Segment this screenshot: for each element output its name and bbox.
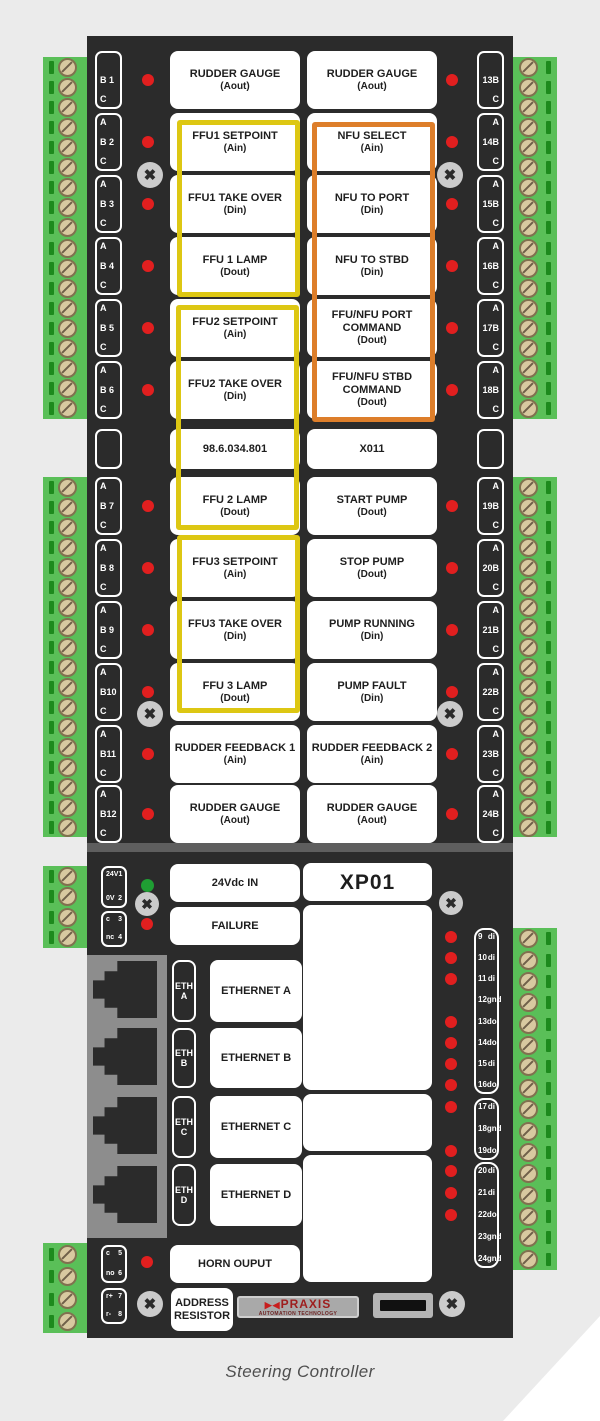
terminal-screw-icon bbox=[519, 218, 538, 237]
io-pin: 9di bbox=[478, 932, 495, 942]
label-title: FFU3 TAKE OVER bbox=[188, 618, 282, 631]
terminal-pin-label: 15B bbox=[482, 200, 499, 209]
status-led-red bbox=[142, 808, 154, 820]
label-sub: (Din) bbox=[224, 631, 247, 643]
terminal-pin-label: 18B bbox=[482, 386, 499, 395]
terminal-screw-icon bbox=[519, 718, 538, 737]
terminal-block-right: A14BC bbox=[477, 113, 504, 171]
ethernet-label: ETHERNET B bbox=[210, 1028, 302, 1088]
pin-name: c bbox=[106, 1250, 110, 1258]
strip-notch bbox=[49, 870, 54, 883]
strip-notch bbox=[49, 382, 54, 395]
terminal-screw-icon bbox=[58, 598, 77, 617]
strip-notch bbox=[546, 282, 551, 295]
strip-notch bbox=[546, 721, 551, 734]
pin-number: 13 bbox=[478, 1017, 487, 1027]
terminal-block-right: A21BC bbox=[477, 601, 504, 659]
terminal-pin-label: C bbox=[100, 343, 117, 352]
eth-tag-line: D bbox=[181, 1195, 188, 1205]
status-led-red bbox=[142, 384, 154, 396]
signal-label: RUDDER FEEDBACK 1(Ain) bbox=[170, 725, 300, 783]
label-sub: (Aout) bbox=[357, 815, 386, 827]
terminal-screw-icon bbox=[58, 798, 77, 817]
terminal-screw-icon bbox=[58, 78, 77, 97]
strip-notch bbox=[49, 621, 54, 634]
rj45-jack-icon bbox=[93, 1166, 157, 1223]
terminal-block-right: A22BC bbox=[477, 663, 504, 721]
terminal-screw-icon bbox=[58, 1267, 77, 1286]
io-pin-group: 9di10di11di12gnd13do14do15di16do bbox=[474, 928, 499, 1094]
terminal-screw-icon bbox=[58, 218, 77, 237]
terminal-pin-label: 23B bbox=[482, 750, 499, 759]
terminal-pin-row: r-8 bbox=[106, 1311, 122, 1319]
signal-label: 98.6.034.801 bbox=[170, 429, 300, 469]
pin-number: 17 bbox=[478, 1102, 487, 1112]
terminal-pin-label: A bbox=[482, 242, 499, 251]
terminal-pin-label: C bbox=[100, 583, 117, 592]
strip-notch bbox=[546, 402, 551, 415]
terminal-screw-icon bbox=[58, 98, 77, 117]
status-led-red bbox=[446, 808, 458, 820]
io-pin-group: 20di21di22do23gnd24gnd bbox=[474, 1162, 499, 1268]
terminal-screw-icon bbox=[519, 1207, 538, 1226]
strip-notch bbox=[546, 121, 551, 134]
signal-label: NFU TO PORT(Din) bbox=[307, 175, 437, 233]
io-pin: 18gnd bbox=[478, 1124, 495, 1134]
status-led-red bbox=[446, 322, 458, 334]
terminal-pin-label: B 9 bbox=[100, 626, 117, 635]
terminal-pin-label: A bbox=[100, 304, 117, 313]
strip-notch bbox=[49, 541, 54, 554]
terminal-pin-label: A bbox=[482, 790, 499, 799]
strip-notch bbox=[49, 761, 54, 774]
pin-number: 24 bbox=[478, 1254, 487, 1264]
signal-label: FFU/NFU STBD COMMAND(Dout) bbox=[307, 361, 437, 419]
terminal-block-right: A23BC bbox=[477, 725, 504, 783]
terminal-pin-row: nc4 bbox=[106, 934, 122, 942]
strip-notch bbox=[546, 1018, 551, 1031]
label-sub: (Dout) bbox=[220, 693, 249, 705]
strip-notch bbox=[546, 701, 551, 714]
status-led-red bbox=[142, 260, 154, 272]
strip-notch bbox=[49, 402, 54, 415]
label-title: FFU 3 LAMP bbox=[203, 680, 268, 693]
strip-notch bbox=[546, 1039, 551, 1052]
strip-notch bbox=[546, 1082, 551, 1095]
label-sub: (Ain) bbox=[224, 143, 247, 155]
label-title: RUDDER GAUGE bbox=[327, 802, 417, 815]
pin-name: r+ bbox=[106, 1293, 113, 1301]
terminal-pin-label: B 4 bbox=[100, 262, 117, 271]
terminal-block-right: A20BC bbox=[477, 539, 504, 597]
terminal-pin-label: A bbox=[100, 544, 117, 553]
label-title: RUDDER GAUGE bbox=[327, 68, 417, 81]
pin-type: di bbox=[488, 1059, 495, 1069]
strip-notch bbox=[546, 362, 551, 375]
terminal-screw-icon bbox=[58, 198, 77, 217]
terminal-screw-icon bbox=[519, 279, 538, 298]
label-title: 98.6.034.801 bbox=[203, 443, 267, 456]
strip-notch bbox=[546, 681, 551, 694]
terminal-screw-icon bbox=[58, 359, 77, 378]
strip-notch bbox=[49, 181, 54, 194]
terminal-screw-icon bbox=[519, 1036, 538, 1055]
power-led-green bbox=[141, 879, 154, 892]
eth-tag-line: ETH bbox=[175, 981, 193, 991]
module-id-label: XP01 bbox=[303, 863, 432, 901]
pin-type: di bbox=[488, 1166, 495, 1176]
terminal-block-left: B 1C bbox=[95, 51, 122, 109]
strip-notch bbox=[49, 931, 54, 944]
signal-label: RUDDER GAUGE(Aout) bbox=[307, 51, 437, 109]
strip-notch bbox=[49, 721, 54, 734]
status-led-red bbox=[445, 1058, 457, 1070]
label-title: FFU/NFU PORT COMMAND bbox=[311, 309, 433, 335]
pin-type: di bbox=[488, 932, 495, 942]
terminal-pin-label: B10 bbox=[100, 688, 117, 697]
strip-notch bbox=[49, 1315, 54, 1328]
io-pin: 20di bbox=[478, 1166, 495, 1176]
terminal-block-right: 13BC bbox=[477, 51, 504, 109]
strip-notch bbox=[49, 161, 54, 174]
pin-number: 14 bbox=[478, 1038, 487, 1048]
terminal-screw-icon bbox=[519, 498, 538, 517]
signal-label: FFU 3 LAMP(Dout) bbox=[170, 663, 300, 721]
pin-type: gnd bbox=[487, 995, 502, 1005]
pin-number: 7 bbox=[118, 1293, 122, 1301]
terminal-block-left: AB 5C bbox=[95, 299, 122, 357]
strip-notch bbox=[546, 1210, 551, 1223]
terminal-pin-label: C bbox=[482, 157, 499, 166]
label-title: RUDDER FEEDBACK 2 bbox=[312, 742, 432, 755]
ethernet-label: ETHERNET C bbox=[210, 1096, 302, 1158]
terminal-pin-row: no6 bbox=[106, 1270, 122, 1278]
io-pin: 21di bbox=[478, 1188, 495, 1198]
terminal-strip bbox=[43, 1243, 87, 1333]
pin-name: c bbox=[106, 916, 110, 924]
status-led-red bbox=[446, 748, 458, 760]
terminal-pin-label: C bbox=[100, 707, 117, 716]
signal-label: START PUMP(Dout) bbox=[307, 477, 437, 535]
label-sub: (Ain) bbox=[224, 329, 247, 341]
strip-notch bbox=[546, 322, 551, 335]
strip-notch bbox=[546, 1253, 551, 1266]
terminal-block-right: A15BC bbox=[477, 175, 504, 233]
strip-notch bbox=[546, 581, 551, 594]
terminal-screw-icon bbox=[58, 578, 77, 597]
terminal-pin-label: 13B bbox=[482, 76, 499, 85]
terminal-block-left: AB 8C bbox=[95, 539, 122, 597]
label-title: NFU SELECT bbox=[337, 130, 406, 143]
terminal-pin-label bbox=[482, 445, 499, 454]
terminal-screw-icon bbox=[519, 951, 538, 970]
terminal-screw-icon bbox=[58, 339, 77, 358]
power-terminal: 24V10V2 bbox=[101, 866, 127, 908]
terminal-strip bbox=[43, 477, 87, 837]
pin-number: 21 bbox=[478, 1188, 487, 1198]
terminal-block-left: AB 6C bbox=[95, 361, 122, 419]
strip-notch bbox=[49, 911, 54, 924]
status-led-red bbox=[446, 198, 458, 210]
terminal-pin-label: C bbox=[482, 583, 499, 592]
terminal-screw-icon bbox=[519, 1250, 538, 1269]
status-led-red bbox=[445, 931, 457, 943]
pin-number: 10 bbox=[478, 953, 487, 963]
status-led-red bbox=[142, 748, 154, 760]
status-led-red bbox=[445, 952, 457, 964]
signal-label: RUDDER GAUGE(Aout) bbox=[307, 785, 437, 843]
terminal-pin-label: B 3 bbox=[100, 200, 117, 209]
panel-divider bbox=[87, 843, 513, 852]
pin-number: 2 bbox=[118, 895, 122, 903]
controller-panel: 24V10V2c3nc424Vdc INFAILUREXP01ETHAETHER… bbox=[87, 852, 513, 1338]
label-title: ETHERNET B bbox=[221, 1052, 291, 1065]
eth-tag-line: ETH bbox=[175, 1185, 193, 1195]
terminal-screw-icon bbox=[519, 738, 538, 757]
pin-number: 22 bbox=[478, 1210, 487, 1220]
terminal-screw-icon bbox=[519, 1228, 538, 1247]
terminal-pin-label: B11 bbox=[100, 750, 117, 759]
screw-icon bbox=[437, 162, 463, 188]
terminal-pin-row: c3 bbox=[106, 916, 122, 924]
strip-notch bbox=[546, 1146, 551, 1159]
terminal-pin-label: 24B bbox=[482, 810, 499, 819]
pin-name: 0V bbox=[106, 895, 115, 903]
terminal-pin-label: C bbox=[100, 281, 117, 290]
terminal-pin-label: C bbox=[100, 219, 117, 228]
status-led-red bbox=[445, 1165, 457, 1177]
terminal-pin-label: C bbox=[482, 405, 499, 414]
signal-label: FFU1 TAKE OVER(Din) bbox=[170, 175, 300, 233]
terminal-screw-icon bbox=[519, 818, 538, 837]
io-pin: 24gnd bbox=[478, 1254, 495, 1264]
io-pin: 13do bbox=[478, 1017, 495, 1027]
terminal-screw-icon bbox=[519, 178, 538, 197]
io-pin: 11di bbox=[478, 974, 495, 984]
terminal-screw-icon bbox=[519, 138, 538, 157]
label-sub: (Din) bbox=[361, 267, 384, 279]
terminal-screw-icon bbox=[519, 1122, 538, 1141]
terminal-block-right: A24BC bbox=[477, 785, 504, 843]
pin-number: 15 bbox=[478, 1059, 487, 1069]
signal-label: FFU3 TAKE OVER(Din) bbox=[170, 601, 300, 659]
pin-number: 1 bbox=[118, 871, 122, 879]
strip-notch bbox=[546, 262, 551, 275]
pin-number: 12 bbox=[478, 995, 487, 1005]
pin-number: 23 bbox=[478, 1232, 487, 1242]
terminal-pin-label: C bbox=[100, 829, 117, 838]
terminal-pin-row: 0V2 bbox=[106, 895, 122, 903]
strip-notch bbox=[49, 661, 54, 674]
strip-notch bbox=[49, 681, 54, 694]
strip-notch bbox=[546, 1231, 551, 1244]
terminal-strip bbox=[43, 57, 87, 419]
terminal-screw-icon bbox=[519, 118, 538, 137]
terminal-screw-icon bbox=[58, 538, 77, 557]
terminal-screw-icon bbox=[519, 158, 538, 177]
signal-label: FFU2 TAKE OVER(Din) bbox=[170, 361, 300, 419]
strip-notch bbox=[49, 282, 54, 295]
status-led-red bbox=[445, 1187, 457, 1199]
terminal-pin-label: A bbox=[482, 544, 499, 553]
terminal-block-left: AB 3C bbox=[95, 175, 122, 233]
strip-notch bbox=[546, 221, 551, 234]
strip-notch bbox=[49, 342, 54, 355]
pin-type: gnd bbox=[487, 1254, 502, 1264]
connector-slot bbox=[373, 1293, 433, 1318]
ethernet-label: ETHERNET D bbox=[210, 1164, 302, 1226]
pin-type: do bbox=[487, 1210, 497, 1220]
signal-label: FFU1 SETPOINT(Ain) bbox=[170, 113, 300, 171]
eth-port-tag: ETHD bbox=[172, 1164, 196, 1226]
terminal-screw-icon bbox=[519, 1100, 538, 1119]
pin-number: 11 bbox=[478, 974, 486, 984]
label-sub: (Aout) bbox=[220, 81, 249, 93]
io-pin: 17di bbox=[478, 1102, 495, 1112]
strip-notch bbox=[546, 561, 551, 574]
pin-type: di bbox=[488, 974, 495, 984]
pin-name: r- bbox=[106, 1311, 111, 1319]
pin-type: do bbox=[487, 1080, 497, 1090]
strip-notch bbox=[49, 890, 54, 903]
strip-notch bbox=[546, 781, 551, 794]
terminal-pin-label: 19B bbox=[482, 502, 499, 511]
strip-notch bbox=[49, 821, 54, 834]
terminal-pin-label: B12 bbox=[100, 810, 117, 819]
strip-notch bbox=[49, 501, 54, 514]
strip-notch bbox=[49, 521, 54, 534]
strip-notch bbox=[49, 141, 54, 154]
label-sub: (Ain) bbox=[224, 569, 247, 581]
terminal-screw-icon bbox=[519, 558, 538, 577]
strip-notch bbox=[546, 761, 551, 774]
screw-icon bbox=[439, 891, 463, 915]
label-title: HORN OUPUT bbox=[198, 1258, 272, 1271]
pin-number: 8 bbox=[118, 1311, 122, 1319]
terminal-pin-label: A bbox=[100, 730, 117, 739]
status-led-red bbox=[446, 500, 458, 512]
terminal-screw-icon bbox=[58, 908, 77, 927]
signal-label: FFU2 SETPOINT(Ain) bbox=[170, 299, 300, 357]
terminal-pin-label: C bbox=[482, 707, 499, 716]
label-title: 24Vdc IN bbox=[212, 877, 258, 890]
terminal-pin-label: B 5 bbox=[100, 324, 117, 333]
label-sub: (Din) bbox=[224, 391, 247, 403]
terminal-pin-label: C bbox=[482, 281, 499, 290]
terminal-pin-label: C bbox=[100, 95, 117, 104]
resistor-terminal: r+7r-8 bbox=[101, 1288, 127, 1324]
strip-notch bbox=[546, 521, 551, 534]
pin-name: nc bbox=[106, 934, 114, 942]
status-led-red bbox=[142, 624, 154, 636]
pin-type: gnd bbox=[487, 1124, 502, 1134]
blank-module-box bbox=[303, 905, 432, 1090]
terminal-pin-label: A bbox=[100, 242, 117, 251]
strip-notch bbox=[546, 1060, 551, 1073]
strip-notch bbox=[49, 801, 54, 814]
label-title: FFU2 TAKE OVER bbox=[188, 378, 282, 391]
strip-notch bbox=[49, 701, 54, 714]
failure-led-red bbox=[141, 918, 153, 930]
terminal-pin-label: 16B bbox=[482, 262, 499, 271]
terminal-screw-icon bbox=[58, 138, 77, 157]
terminal-screw-icon bbox=[58, 399, 77, 418]
status-led-red bbox=[446, 384, 458, 396]
label-sub: (Dout) bbox=[357, 569, 386, 581]
terminal-pin-label: B 2 bbox=[100, 138, 117, 147]
strip-notch bbox=[546, 601, 551, 614]
terminal-pin-label: B 8 bbox=[100, 564, 117, 573]
terminal-screw-icon bbox=[58, 778, 77, 797]
terminal-screw-icon bbox=[58, 1245, 77, 1264]
status-led-red bbox=[142, 322, 154, 334]
power-input-label: 24Vdc IN bbox=[170, 864, 300, 902]
terminal-screw-icon bbox=[58, 518, 77, 537]
label-title: ADDRESS bbox=[175, 1297, 229, 1310]
strip-notch bbox=[49, 561, 54, 574]
strip-notch bbox=[546, 641, 551, 654]
label-title: FFU1 SETPOINT bbox=[192, 130, 278, 143]
status-led-red bbox=[445, 1209, 457, 1221]
pin-type: do bbox=[487, 1146, 497, 1156]
terminal-screw-icon bbox=[519, 778, 538, 797]
terminal-pin-label bbox=[482, 56, 499, 65]
status-led-red bbox=[446, 686, 458, 698]
terminal-pin-label: 21B bbox=[482, 626, 499, 635]
horn-output-label: HORN OUPUT bbox=[170, 1245, 300, 1283]
terminal-screw-icon bbox=[519, 98, 538, 117]
terminal-pin-label: A bbox=[482, 606, 499, 615]
io-pin: 10di bbox=[478, 953, 495, 963]
signal-label: PUMP FAULT(Din) bbox=[307, 663, 437, 721]
strip-notch bbox=[546, 801, 551, 814]
terminal-block-left: AB 9C bbox=[95, 601, 122, 659]
strip-notch bbox=[49, 1248, 54, 1261]
terminal-block-left bbox=[95, 429, 122, 469]
pin-number: 4 bbox=[118, 934, 122, 942]
pin-type: do bbox=[487, 1038, 497, 1048]
terminal-screw-icon bbox=[58, 279, 77, 298]
pin-name: no bbox=[106, 1270, 115, 1278]
strip-notch bbox=[49, 201, 54, 214]
strip-notch bbox=[49, 302, 54, 315]
signal-label: FFU 2 LAMP(Dout) bbox=[170, 477, 300, 535]
signal-label: PUMP RUNNING(Din) bbox=[307, 601, 437, 659]
label-sub: (Din) bbox=[361, 693, 384, 705]
terminal-screw-icon bbox=[58, 718, 77, 737]
rj45-jack-icon bbox=[93, 1028, 157, 1085]
terminal-screw-icon bbox=[519, 538, 538, 557]
status-led-red bbox=[445, 973, 457, 985]
io-pin: 15di bbox=[478, 1059, 495, 1069]
terminal-screw-icon bbox=[519, 798, 538, 817]
status-led-red bbox=[142, 136, 154, 148]
terminal-block-right: A16BC bbox=[477, 237, 504, 295]
strip-notch bbox=[546, 481, 551, 494]
status-led-red bbox=[446, 260, 458, 272]
status-led-red bbox=[142, 74, 154, 86]
signal-label: FFU3 SETPOINT(Ain) bbox=[170, 539, 300, 597]
terminal-pin-label: C bbox=[482, 343, 499, 352]
label-title: FFU/NFU STBD COMMAND bbox=[311, 371, 433, 397]
terminal-pin-label bbox=[100, 56, 117, 65]
strip-notch bbox=[49, 741, 54, 754]
strip-notch bbox=[546, 201, 551, 214]
strip-notch bbox=[546, 975, 551, 988]
horn-terminal: c5no6 bbox=[101, 1245, 127, 1283]
pin-number: 9 bbox=[478, 932, 482, 942]
status-led-red bbox=[142, 198, 154, 210]
